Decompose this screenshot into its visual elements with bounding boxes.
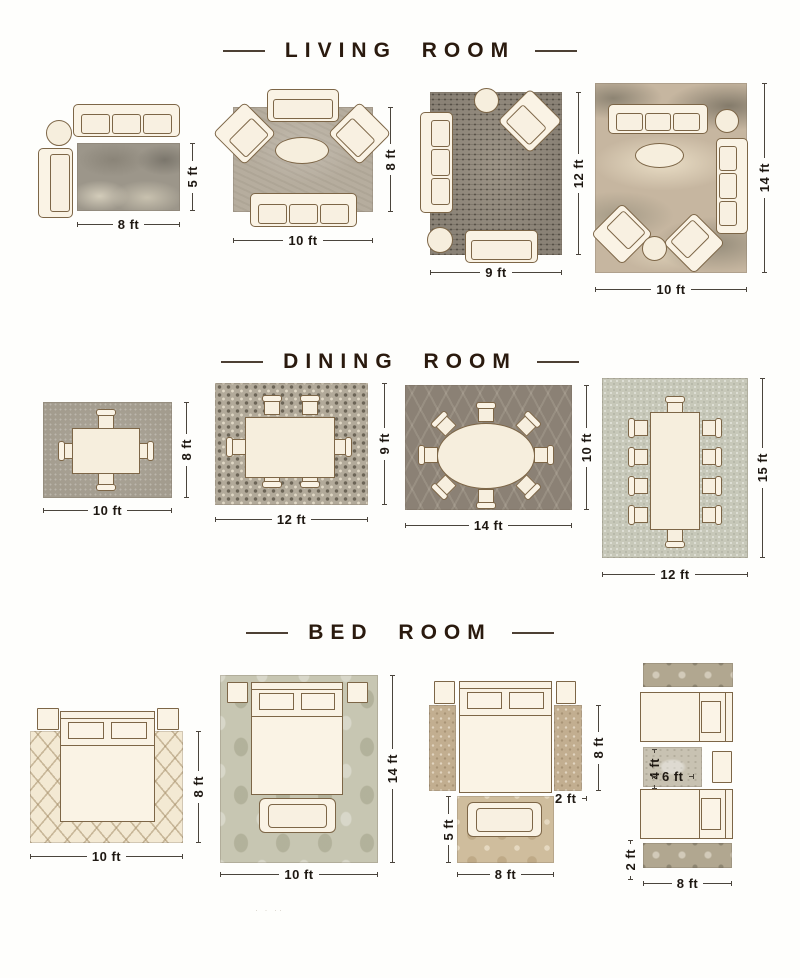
nightstand bbox=[37, 708, 59, 730]
cushion bbox=[81, 114, 110, 134]
dimension-line bbox=[578, 193, 579, 255]
headboard bbox=[252, 683, 342, 690]
dimension-line bbox=[654, 749, 655, 753]
chair-seat bbox=[264, 401, 280, 415]
dimension-label: 8 ft bbox=[591, 737, 606, 759]
height-dimension: 10 ft bbox=[578, 385, 594, 510]
dining-table bbox=[650, 412, 700, 530]
cushion bbox=[471, 240, 532, 260]
cushion bbox=[273, 99, 333, 119]
dining-chair bbox=[628, 505, 648, 525]
round-side-table bbox=[46, 120, 72, 146]
seat bbox=[719, 146, 737, 227]
pillow-row bbox=[467, 692, 544, 709]
loveseat bbox=[465, 230, 538, 263]
dimension-label: 14 ft bbox=[757, 163, 772, 192]
chair-seat bbox=[702, 449, 716, 465]
height-dimension: 14 ft bbox=[756, 83, 772, 273]
dimension-label: 10 ft bbox=[656, 282, 685, 297]
bed bbox=[459, 681, 552, 793]
width-dimension: 10 ft bbox=[43, 502, 172, 518]
dimension-line bbox=[384, 460, 385, 505]
chair-back bbox=[715, 418, 722, 438]
seat bbox=[81, 114, 171, 134]
dimension-line bbox=[77, 224, 113, 225]
dining-chair bbox=[332, 437, 352, 457]
watermark: · · ·· bbox=[255, 905, 284, 915]
blanket-line bbox=[699, 790, 700, 838]
cushion bbox=[673, 113, 700, 131]
cushion bbox=[431, 178, 450, 205]
dimension-label: 10 ft bbox=[92, 849, 121, 864]
height-dimension: 12 ft bbox=[570, 92, 586, 255]
dining-chair bbox=[418, 445, 438, 465]
nightstand bbox=[227, 682, 248, 703]
seat bbox=[616, 113, 700, 131]
dimension-label: 8 ft bbox=[677, 876, 699, 891]
dimension-label: 12 ft bbox=[571, 159, 586, 188]
cushion bbox=[616, 113, 643, 131]
cushion bbox=[719, 146, 737, 172]
chair-seat bbox=[702, 478, 716, 494]
height-dimension: 5 ft bbox=[440, 796, 456, 863]
chair-seat bbox=[634, 507, 648, 523]
width-dimension: 10 ft bbox=[233, 232, 373, 248]
dimension-label: 15 ft bbox=[755, 453, 770, 482]
width-dimension: 8 ft bbox=[457, 866, 554, 882]
chair-seat bbox=[634, 449, 648, 465]
dining-chair bbox=[96, 471, 116, 491]
dimension-line bbox=[127, 510, 172, 511]
chair-seat bbox=[534, 447, 548, 463]
blanket-line bbox=[61, 745, 154, 746]
width-dimension: 8 ft bbox=[77, 216, 180, 232]
width-dimension: 12 ft bbox=[215, 511, 368, 527]
dimension-line bbox=[392, 789, 393, 863]
headboard bbox=[725, 790, 732, 838]
dimension-line bbox=[695, 574, 748, 575]
height-dimension: 14 ft bbox=[384, 675, 400, 863]
dimension-line bbox=[186, 402, 187, 434]
runner-rug bbox=[429, 705, 456, 791]
seat bbox=[471, 240, 532, 260]
dimension-label: 8 ft bbox=[118, 217, 140, 232]
nightstand bbox=[157, 708, 179, 730]
height-dimension: 8 ft bbox=[178, 402, 194, 498]
dimension-line bbox=[595, 289, 651, 290]
runner-rug bbox=[643, 663, 733, 687]
dimension-line bbox=[198, 803, 199, 843]
bed bbox=[60, 711, 155, 822]
dimension-line bbox=[198, 731, 199, 771]
dining-chair bbox=[300, 395, 320, 415]
dimension-line bbox=[654, 785, 655, 789]
chair-seat bbox=[478, 408, 494, 422]
round-side-table bbox=[427, 227, 453, 253]
sofa bbox=[250, 193, 357, 227]
chair-seat bbox=[634, 420, 648, 436]
pillow bbox=[111, 722, 147, 739]
dining-chair bbox=[702, 447, 722, 467]
round-side-table bbox=[715, 109, 739, 133]
dimension-line bbox=[630, 840, 631, 844]
dimension-label: 9 ft bbox=[485, 265, 507, 280]
dimension-line bbox=[311, 519, 368, 520]
width-dimension: 9 ft bbox=[430, 264, 562, 280]
dimension-label: 2 ft bbox=[623, 849, 638, 871]
dimension-label: 8 ft bbox=[495, 867, 517, 882]
chair-back bbox=[715, 476, 722, 496]
chair-seat bbox=[634, 478, 648, 494]
section-title-text: LIVING ROOM bbox=[285, 39, 515, 63]
dining-chair bbox=[476, 489, 496, 509]
dimension-line bbox=[512, 272, 562, 273]
headboard bbox=[61, 712, 154, 719]
dining-chair bbox=[702, 505, 722, 525]
cushion bbox=[289, 204, 318, 225]
dining-chair bbox=[702, 418, 722, 438]
dimension-line bbox=[643, 883, 672, 884]
dimension-label: 8 ft bbox=[191, 776, 206, 798]
runner-rug bbox=[643, 843, 732, 868]
dimension-line bbox=[457, 874, 490, 875]
width-dimension: 10 ft bbox=[595, 281, 747, 297]
dimension-label: 8 ft bbox=[383, 149, 398, 171]
oval-coffee-table bbox=[275, 137, 329, 164]
dining-chair bbox=[534, 445, 554, 465]
section-title-text: BED ROOM bbox=[308, 621, 492, 645]
dimension-line bbox=[192, 193, 193, 211]
bench bbox=[467, 802, 542, 837]
chair-seat bbox=[667, 528, 683, 542]
dimension-line bbox=[602, 574, 655, 575]
cushion bbox=[320, 204, 349, 225]
dimension-line bbox=[126, 856, 183, 857]
height-dimension: 9 ft bbox=[376, 383, 392, 505]
pillow bbox=[701, 701, 721, 733]
seat bbox=[431, 120, 450, 205]
chair-back bbox=[476, 502, 496, 509]
title-dash-left bbox=[223, 50, 265, 52]
pillow-row bbox=[259, 693, 335, 710]
dimension-line bbox=[598, 764, 599, 791]
height-dimension: 8 ft bbox=[382, 107, 398, 212]
cushion bbox=[645, 113, 672, 131]
title-dash-right bbox=[537, 361, 579, 363]
rug bbox=[77, 143, 180, 211]
section-title-living-room: LIVING ROOM bbox=[0, 36, 800, 66]
dimension-line bbox=[764, 83, 765, 158]
dimension-line bbox=[578, 92, 579, 154]
pillow bbox=[301, 693, 336, 710]
chair-back bbox=[715, 447, 722, 467]
chair-back bbox=[96, 484, 116, 491]
runner-rug bbox=[554, 705, 582, 791]
dimension-line bbox=[689, 776, 694, 777]
dimension-line bbox=[390, 175, 391, 212]
dimension-line bbox=[30, 856, 87, 857]
dimension-line bbox=[192, 143, 193, 161]
dimension-line bbox=[186, 466, 187, 498]
nightstand bbox=[347, 682, 368, 703]
dimension-label: 10 ft bbox=[93, 503, 122, 518]
pillow bbox=[467, 692, 502, 709]
title-dash-right bbox=[535, 50, 577, 52]
dimension-line bbox=[220, 874, 279, 875]
round-side-table bbox=[642, 236, 667, 261]
cushion bbox=[431, 149, 450, 176]
dimension-line bbox=[390, 107, 391, 144]
dimension-line bbox=[233, 240, 283, 241]
nightstand bbox=[556, 681, 576, 704]
width-dimension: 14 ft bbox=[405, 517, 572, 533]
bench-cushion bbox=[476, 808, 533, 832]
sofa bbox=[73, 104, 180, 137]
dimension-line bbox=[319, 874, 378, 875]
width-dimension: 10 ft bbox=[220, 866, 378, 882]
dimension-label: 14 ft bbox=[385, 754, 400, 783]
height-dimension: 15 ft bbox=[754, 378, 770, 558]
bed bbox=[251, 682, 343, 795]
dimension-label: 6 ft bbox=[662, 769, 684, 784]
dining-chair bbox=[628, 476, 648, 496]
blanket-line bbox=[699, 693, 700, 741]
dining-chair bbox=[476, 402, 496, 422]
dimension-line bbox=[652, 776, 657, 777]
section-title-text: DINING ROOM bbox=[283, 350, 517, 374]
dimension-line bbox=[586, 385, 587, 428]
dimension-line bbox=[586, 467, 587, 510]
pillow-row bbox=[68, 722, 147, 739]
dimension-label: 12 ft bbox=[277, 512, 306, 527]
sofa bbox=[608, 104, 708, 134]
dimension-line bbox=[405, 525, 469, 526]
title-dash-left bbox=[246, 632, 288, 634]
chaise bbox=[38, 148, 73, 218]
oval-dining-table bbox=[437, 423, 535, 489]
section-title-bed-room: BED ROOM bbox=[0, 618, 800, 648]
cushion bbox=[431, 120, 450, 147]
dimension-label: 5 ft bbox=[185, 166, 200, 188]
headboard bbox=[460, 682, 551, 689]
oval-coffee-table bbox=[635, 143, 684, 168]
headboard bbox=[725, 693, 732, 741]
chair-seat bbox=[98, 415, 114, 429]
title-dash-left bbox=[221, 361, 263, 363]
chair-seat bbox=[232, 439, 246, 455]
dimension-label: 5 ft bbox=[441, 819, 456, 841]
chair-back bbox=[547, 445, 554, 465]
dimension-line bbox=[384, 383, 385, 428]
dimension-line bbox=[448, 796, 449, 814]
cushion bbox=[50, 154, 70, 213]
chair-back bbox=[300, 481, 320, 488]
dimension-label: 14 ft bbox=[474, 518, 503, 533]
cushion bbox=[143, 114, 172, 134]
dimension-line bbox=[764, 198, 765, 273]
chair-seat bbox=[702, 420, 716, 436]
section-title-dining-room: DINING ROOM bbox=[0, 347, 800, 377]
center-rug-width-dimension: 6 ft bbox=[652, 768, 700, 784]
twin-bed bbox=[640, 692, 733, 742]
seat bbox=[50, 154, 70, 213]
dimension-label: 12 ft bbox=[660, 567, 689, 582]
bench-cushion bbox=[268, 804, 327, 828]
dimension-label: 10 ft bbox=[288, 233, 317, 248]
pillow-row bbox=[701, 798, 721, 830]
dimension-line bbox=[323, 240, 373, 241]
rug-size-guide: LIVING ROOM 8 ft 5 ft 10 ft 8 ft bbox=[0, 0, 800, 978]
dimension-line bbox=[448, 845, 449, 863]
chair-back bbox=[665, 541, 685, 548]
loveseat bbox=[267, 89, 339, 122]
cushion bbox=[719, 201, 737, 227]
dimension-line bbox=[598, 705, 599, 732]
dining-table bbox=[72, 428, 140, 474]
dining-chair bbox=[96, 409, 116, 429]
chair-back bbox=[262, 481, 282, 488]
dining-chair bbox=[226, 437, 246, 457]
dimension-line bbox=[430, 272, 480, 273]
dimension-label: 10 ft bbox=[284, 867, 313, 882]
height-dimension: 5 ft bbox=[184, 143, 200, 211]
dimension-line bbox=[630, 876, 631, 880]
chair-seat bbox=[424, 447, 438, 463]
dimension-label: 9 ft bbox=[377, 433, 392, 455]
sofa bbox=[420, 112, 453, 213]
dimension-label: 8 ft bbox=[179, 439, 194, 461]
dimension-line bbox=[215, 519, 272, 520]
dimension-line bbox=[521, 874, 554, 875]
dimension-line bbox=[144, 224, 180, 225]
dimension-line bbox=[582, 798, 587, 799]
twin-bed bbox=[640, 789, 733, 839]
width-dimension: 12 ft bbox=[602, 566, 748, 582]
seat bbox=[273, 99, 333, 119]
pillow bbox=[509, 692, 544, 709]
dining-chair bbox=[665, 528, 685, 548]
runner-height-dimension: 8 ft bbox=[590, 705, 606, 791]
dimension-line bbox=[762, 488, 763, 558]
cushion bbox=[719, 173, 737, 199]
chair-back bbox=[147, 441, 154, 461]
round-side-table bbox=[474, 88, 499, 113]
pillow bbox=[68, 722, 104, 739]
nightstand bbox=[712, 751, 732, 783]
dimension-line bbox=[762, 378, 763, 448]
bench bbox=[259, 798, 336, 833]
height-dimension: 8 ft bbox=[190, 731, 206, 843]
dimension-line bbox=[691, 289, 747, 290]
blanket-line bbox=[252, 716, 342, 717]
dining-chair bbox=[628, 418, 648, 438]
width-dimension: 8 ft bbox=[643, 875, 732, 891]
dining-chair bbox=[628, 447, 648, 467]
dining-table bbox=[245, 417, 335, 478]
dimension-line bbox=[43, 510, 88, 511]
dimension-line bbox=[392, 675, 393, 749]
seat bbox=[258, 204, 348, 225]
cushion bbox=[258, 204, 287, 225]
nightstand bbox=[434, 681, 455, 704]
sofa bbox=[716, 138, 748, 234]
width-dimension: 10 ft bbox=[30, 848, 183, 864]
runner-width-dimension: 2 ft bbox=[622, 840, 638, 870]
dimension-line bbox=[703, 883, 732, 884]
cushion bbox=[112, 114, 141, 134]
dimension-label: 2 ft bbox=[555, 791, 577, 806]
title-dash-right bbox=[512, 632, 554, 634]
chair-back bbox=[715, 505, 722, 525]
pillow bbox=[259, 693, 294, 710]
pillow bbox=[701, 798, 721, 830]
dimension-label: 10 ft bbox=[579, 433, 594, 462]
chair-seat bbox=[302, 401, 318, 415]
blanket-line bbox=[460, 715, 551, 716]
dining-chair bbox=[262, 395, 282, 415]
dimension-line bbox=[508, 525, 572, 526]
chair-back bbox=[345, 437, 352, 457]
chair-seat bbox=[478, 489, 494, 503]
chair-seat bbox=[702, 507, 716, 523]
dining-chair bbox=[702, 476, 722, 496]
pillow-row bbox=[701, 701, 721, 733]
